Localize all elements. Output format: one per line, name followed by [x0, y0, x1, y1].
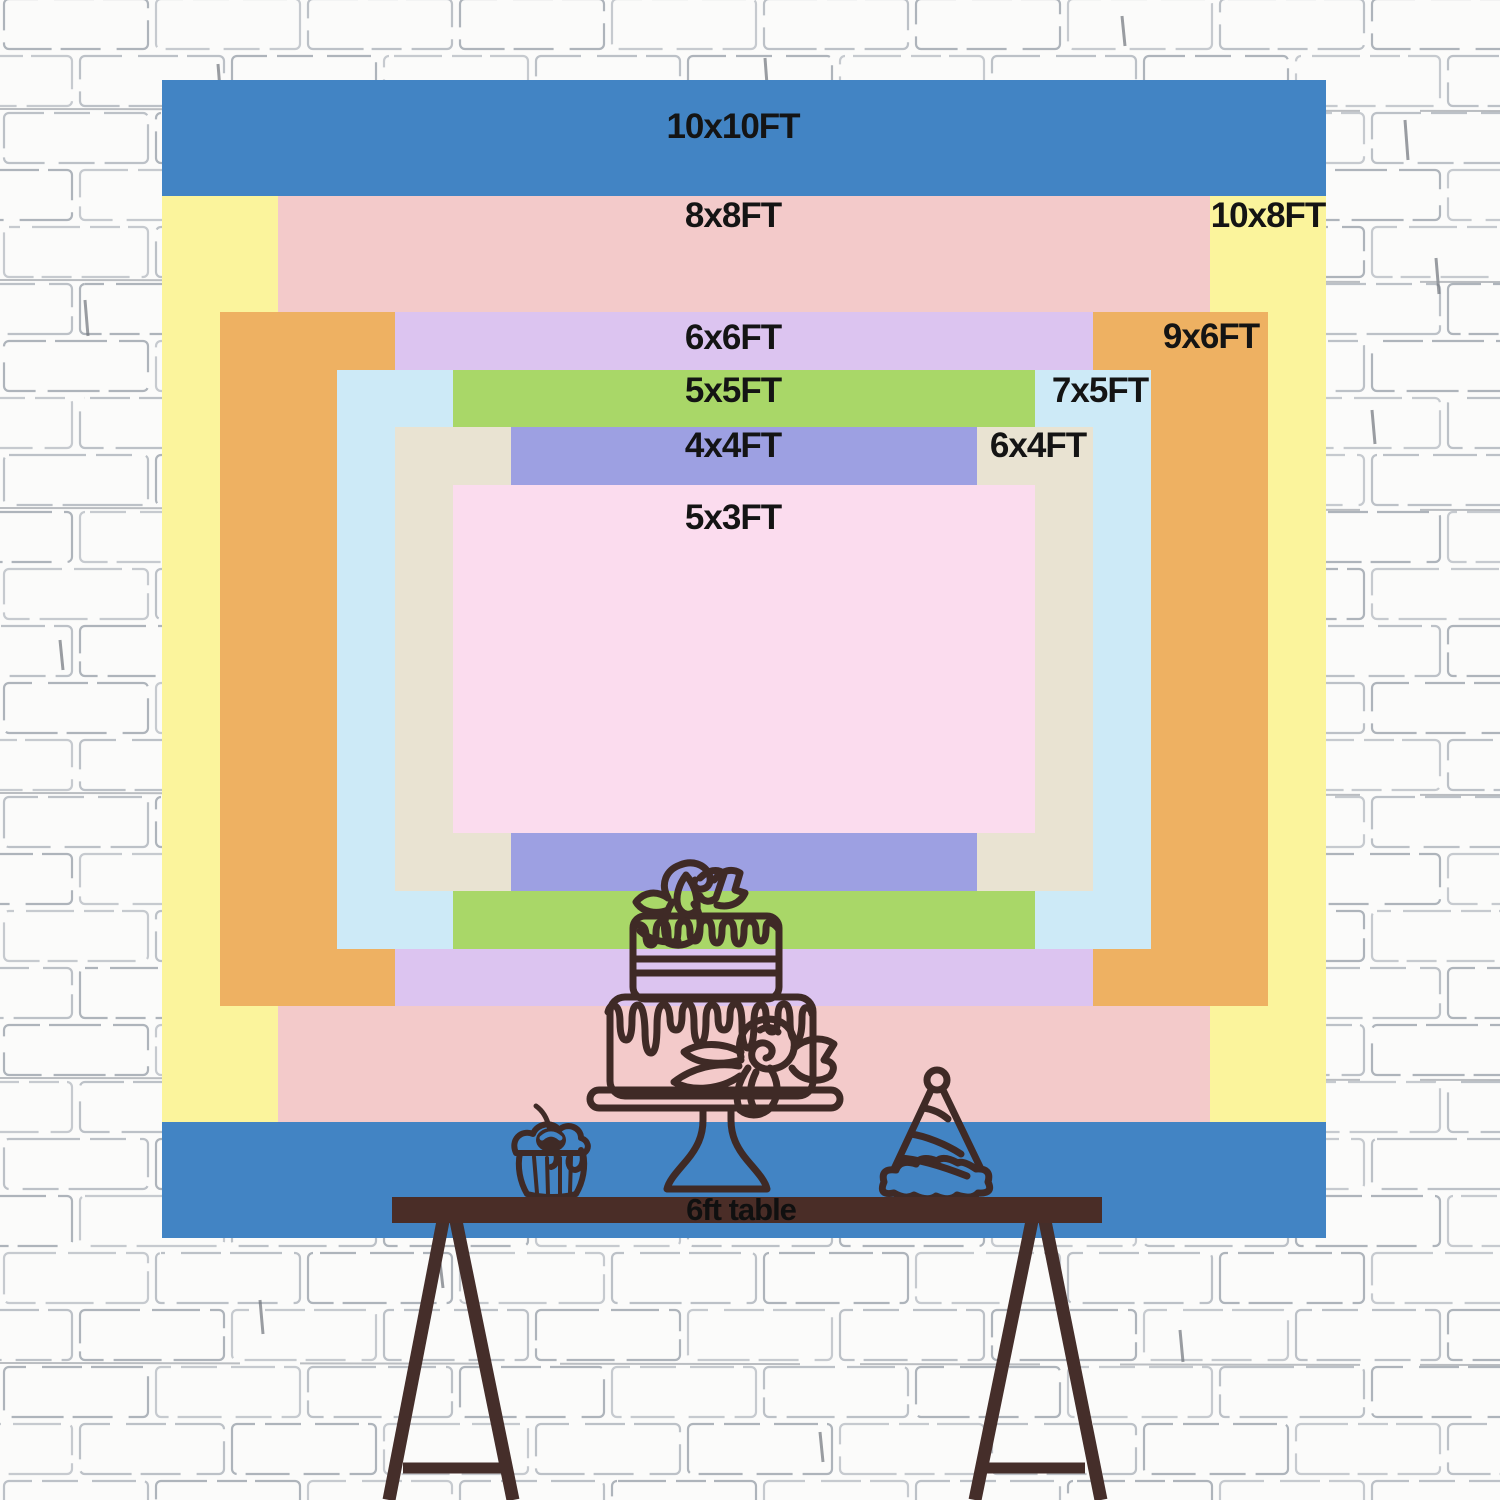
cake-flower-left-upper-leaf: [684, 1045, 741, 1064]
table-label: 6ft table: [686, 1192, 796, 1228]
hat-stripe-1: [923, 1108, 948, 1119]
left-trestle-left-leg: [389, 1216, 444, 1500]
backdrop-size-chart: 10x10FT10x8FT8x8FT9x6FT6x6FT7x5FT5x5FT6x…: [0, 0, 1500, 1500]
cake-flower-left-lower-leaf: [674, 1065, 740, 1088]
illustration-layer: [0, 0, 1500, 1500]
left-trestle-right-leg: [455, 1216, 513, 1500]
hat-stripe-2: [911, 1134, 961, 1154]
right-trestle-right-leg: [1044, 1216, 1101, 1500]
table-legs: [389, 1216, 1101, 1500]
cupcake-illustration: [514, 1106, 588, 1197]
party-hat-illustration: [882, 1070, 989, 1199]
cupcake-cup: [519, 1153, 584, 1197]
cake-topper-left-leaf: [636, 893, 668, 912]
tiered-cake-illustration: [590, 863, 840, 1189]
cake-stand: [667, 1108, 767, 1189]
right-trestle-left-leg: [975, 1216, 1033, 1500]
